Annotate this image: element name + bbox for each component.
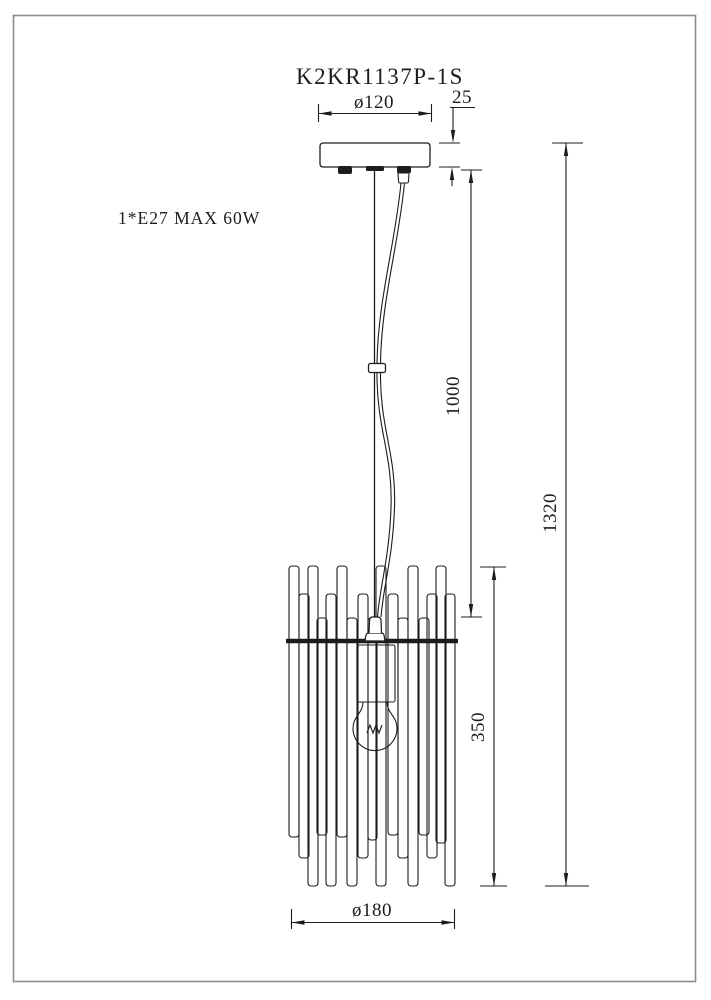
dim-canopy-height: 25 — [439, 87, 475, 186]
model-number-label: K2KR1137P-1S — [296, 64, 464, 89]
arrow-up — [492, 567, 496, 580]
lamp-spec-label: 1*E27 MAX 60W — [118, 208, 260, 228]
dim-shade-diameter: ø180 — [292, 900, 455, 929]
arrow-down — [492, 873, 496, 886]
arrow-right — [419, 111, 432, 115]
arrow-down — [469, 604, 473, 617]
cord-strain-relief — [398, 173, 409, 183]
socket-grip — [369, 617, 382, 633]
power-cord-edge — [381, 183, 405, 617]
arrow-right — [442, 920, 455, 924]
shade-rod — [388, 594, 398, 835]
power-cord-edge — [377, 183, 401, 617]
dim-total-height: 1320 — [540, 143, 589, 886]
technical-drawing-page: K2KR1137P-1S 1*E27 MAX 60W — [0, 0, 711, 1000]
shade-height-value: 350 — [468, 712, 489, 742]
bulb — [353, 702, 397, 751]
canopy-height-value: 25 — [452, 87, 472, 108]
shade-rod — [337, 566, 347, 837]
canopy-cord-nub — [397, 166, 411, 173]
arrow-down — [451, 130, 455, 143]
border-frame — [14, 16, 696, 982]
canopy-diameter-value: ø120 — [354, 92, 394, 113]
shade-rod — [347, 618, 357, 886]
arrow-left — [319, 111, 332, 115]
frame-rect — [14, 16, 696, 982]
shade — [286, 566, 458, 886]
dim-suspension-length: 1000 — [443, 170, 482, 617]
shade-rod — [408, 566, 418, 886]
shade-rod — [398, 618, 408, 858]
cord-connector — [369, 364, 386, 373]
dim-shade-height: 350 — [468, 567, 507, 886]
arrow-left — [292, 920, 305, 924]
dim-canopy-diameter: ø120 — [319, 92, 432, 122]
arrow-down — [564, 873, 568, 886]
shade-rod — [289, 566, 299, 837]
canopy-body — [320, 143, 430, 167]
socket-skirt — [365, 633, 385, 641]
arrow-up — [469, 170, 473, 183]
suspension-length-value: 1000 — [443, 376, 464, 416]
power-cord — [377, 183, 405, 617]
canopy-left-nub — [338, 166, 352, 174]
bulb-filament-icon — [367, 725, 382, 733]
total-height-value: 1320 — [540, 493, 561, 533]
shade-diameter-value: ø180 — [352, 900, 392, 921]
arrow-up — [564, 143, 568, 156]
